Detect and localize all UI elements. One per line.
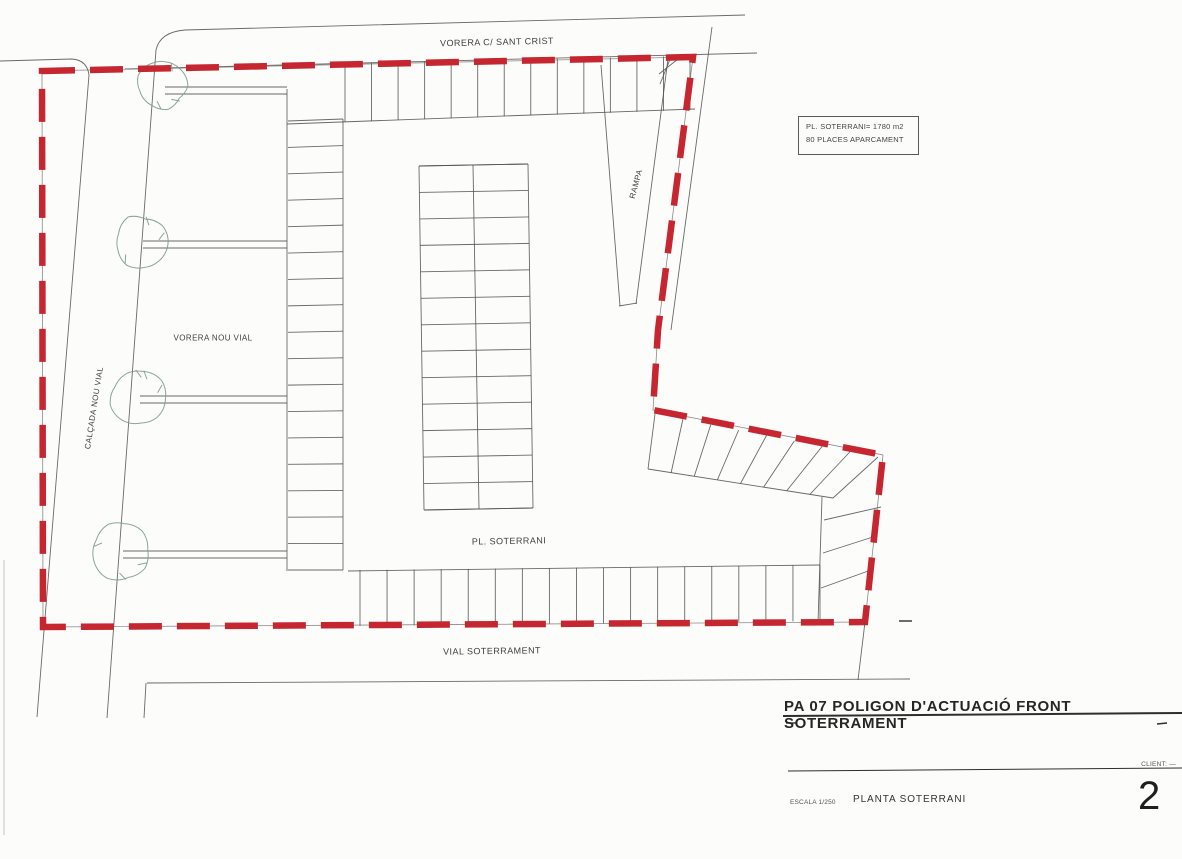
- actuation-boundary: [42, 57, 883, 627]
- ramp-arrow-icon: [659, 59, 678, 74]
- info-box-places: 80 PLACES APARCAMENT: [806, 133, 918, 146]
- frame-lines: [144, 621, 1182, 771]
- building-lines: [287, 89, 881, 623]
- scale-label: ESCALA 1/250: [790, 799, 836, 806]
- title-block-title: PA 07 POLIGON D'ACTUACIÓ FRONT SOTERRAME…: [784, 698, 1182, 732]
- trees: [93, 61, 188, 579]
- tree-icon: [110, 371, 166, 424]
- label-bottom-road: VIAL SOTERRAMENT: [443, 645, 541, 656]
- tree-icon: [117, 216, 168, 268]
- drawing-name-label: PLANTA SOTERRANI: [853, 794, 966, 805]
- parking-stalls: [288, 56, 878, 626]
- tree-tie-lines: [123, 87, 287, 558]
- info-box-area: PL. SOTERRANI= 1780 m2: [806, 120, 918, 133]
- client-label: CLIENT: —: [1141, 761, 1176, 768]
- boundary-underlay: [42, 57, 883, 627]
- info-box: PL. SOTERRANI= 1780 m2 80 PLACES APARCAM…: [798, 116, 919, 155]
- label-basement: PL. SOTERRANI: [472, 535, 547, 546]
- label-left-sidewalk: VORERA NOU VIAL: [174, 334, 253, 343]
- sheet-number: 2: [1138, 776, 1160, 816]
- plan-sheet: VORERA C/ SANT CRIST RAMPA VORERA NOU VI…: [0, 0, 1182, 859]
- street-lines: [0, 15, 757, 835]
